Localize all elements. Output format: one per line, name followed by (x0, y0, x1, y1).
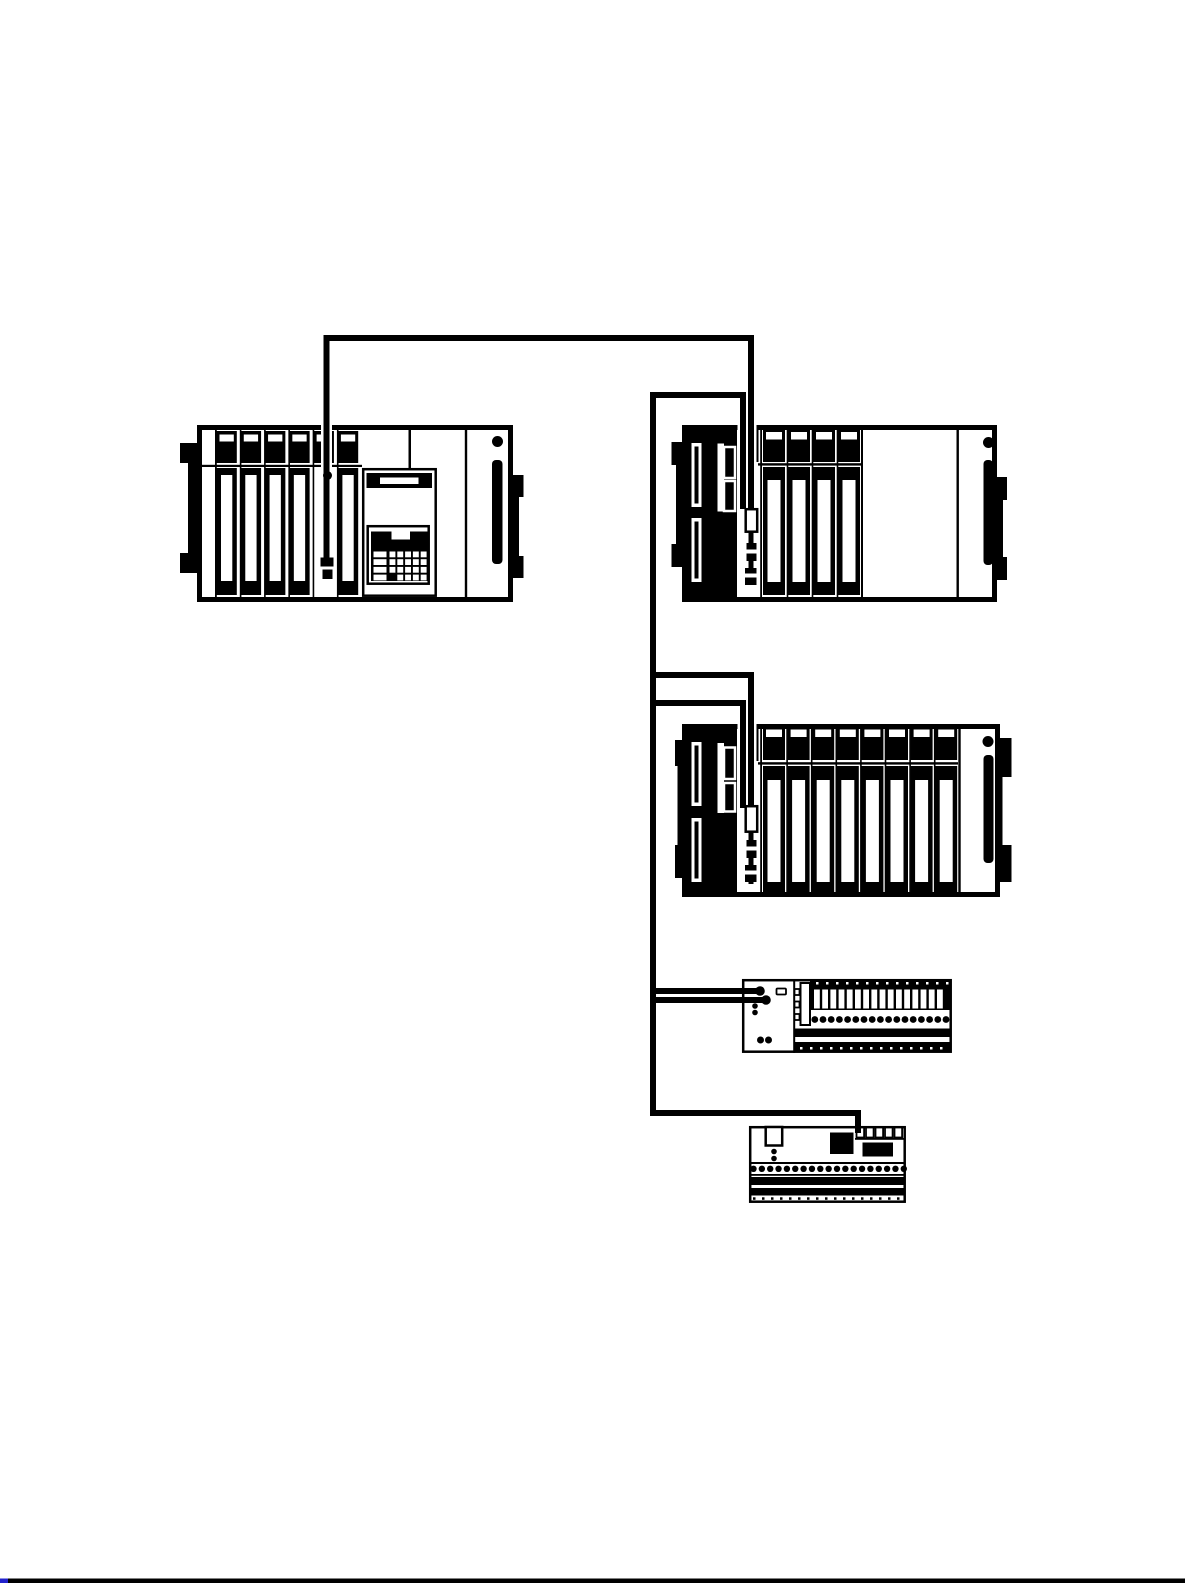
tick-mark (807, 1197, 810, 1200)
io-module-top-label (889, 730, 905, 738)
bus-connector (795, 983, 811, 1025)
connection-terminal-dot (755, 986, 765, 996)
cpu-port (724, 783, 735, 812)
mounting-screw (765, 1037, 772, 1044)
bracket-tab (1000, 738, 1012, 777)
io-module-top-label (341, 435, 355, 442)
cpu-port (724, 481, 735, 511)
tick-mark (856, 982, 859, 985)
io-module-top-label (864, 730, 880, 738)
keypad-notch (392, 532, 411, 540)
connector-notch (745, 871, 757, 875)
divider-line (751, 1162, 905, 1164)
mounting-screw (757, 1037, 764, 1044)
tick-mark (834, 1197, 837, 1200)
tick-mark (860, 1047, 863, 1050)
keypad-key (421, 575, 427, 581)
power-slot (984, 755, 994, 863)
terminal-screw (918, 1016, 925, 1023)
terminal-screw (828, 1016, 835, 1023)
tick-mark (753, 1197, 756, 1200)
tick-mark (798, 1197, 801, 1200)
terminal-screw (885, 1016, 892, 1023)
io-module-card-stripe (221, 475, 232, 581)
tick-mark (826, 982, 829, 985)
footer-rule (8, 1579, 1185, 1584)
tick-mark (780, 1197, 783, 1200)
section-divider (957, 430, 959, 597)
terminal-screw (792, 1166, 798, 1172)
connector-notch (747, 847, 757, 851)
terminal-screw (767, 1166, 773, 1172)
terminal-screw (800, 1166, 806, 1172)
power-led-icon (983, 437, 994, 448)
indicator-slit (695, 746, 699, 803)
rack3-cable-connector (745, 806, 757, 884)
keypad-key-wide (374, 559, 387, 565)
keypad-key (421, 559, 427, 565)
io-module-card-stripe (294, 475, 305, 581)
tick-mark (771, 1197, 774, 1200)
tick-mark (906, 982, 909, 985)
io-module-card-stripe (841, 780, 854, 882)
terminal-box (866, 1128, 874, 1138)
terminal-screw (901, 1166, 907, 1172)
terminal-screw (775, 1166, 781, 1172)
keypad-key (397, 552, 403, 558)
terminal-screw (877, 1016, 884, 1023)
tick-mark (897, 1197, 900, 1200)
terminal-screw (809, 1166, 815, 1172)
tick-mark (850, 1047, 853, 1050)
power-slot (984, 460, 994, 565)
rail-band (795, 1029, 952, 1038)
terminal-slot (847, 990, 853, 1009)
tick-mark (816, 1197, 819, 1200)
tick-mark (940, 1047, 943, 1050)
status-indicator (777, 989, 787, 995)
tick-mark (888, 1197, 891, 1200)
io-module-card-stripe (843, 480, 856, 582)
terminal-slot (896, 990, 902, 1009)
tick-mark (836, 982, 839, 985)
terminal-screw (811, 1016, 818, 1023)
plc-rack-expansion-a (672, 425, 1008, 602)
bracket-tab (675, 845, 682, 878)
tick-mark (870, 1197, 873, 1200)
terminal-screw (842, 1166, 848, 1172)
tick-mark (816, 982, 819, 985)
mounting-bracket-left (672, 442, 683, 567)
terminal-screw (836, 1016, 843, 1023)
tick-mark (866, 982, 869, 985)
io-module-top-label (816, 432, 832, 440)
connector-block (323, 570, 333, 580)
keypad-key (405, 559, 411, 565)
section-divider (465, 430, 467, 597)
io-module-card-stripe (768, 780, 781, 882)
connector-body (801, 983, 811, 1025)
keypad-key (397, 567, 403, 573)
io-module-top-label (815, 730, 831, 738)
terminal-screw (852, 1016, 859, 1023)
io-module-card-stripe (866, 780, 879, 882)
connection-terminal-dot (323, 471, 332, 480)
power-slot (492, 460, 503, 564)
terminal-screw (851, 1166, 857, 1172)
terminal-screw (861, 1016, 868, 1023)
io-module-card-stripe (818, 480, 831, 582)
tick-mark (762, 1197, 765, 1200)
connector-pin (795, 1014, 800, 1020)
tick-mark (800, 1047, 803, 1050)
terminal-screw (893, 1016, 900, 1023)
io-module-card-stripe (245, 475, 256, 581)
tick-mark (810, 1047, 813, 1050)
module-shelf-line (758, 463, 862, 465)
terminal-screw (926, 1016, 933, 1023)
terminal-screw (859, 1166, 865, 1172)
tick-mark (936, 982, 939, 985)
terminal-screw (784, 1166, 790, 1172)
io-module-card-stripe (915, 780, 928, 882)
keypad-key (421, 567, 427, 573)
terminal-screw (820, 1016, 827, 1023)
terminal-slot (830, 990, 836, 1009)
bracket-tab (997, 477, 1007, 500)
tick-mark (916, 982, 919, 985)
display-screen (380, 478, 419, 485)
indicator-slit (695, 447, 699, 504)
terminal-box (876, 1128, 884, 1138)
slot-divider (760, 727, 762, 893)
bracket-tab (513, 556, 524, 578)
terminal-screw (867, 1166, 873, 1172)
manual-page (0, 0, 1193, 1585)
programming-console (363, 469, 436, 596)
io-module-top-label (938, 730, 954, 738)
bracket-tab (997, 557, 1007, 580)
mounting-bracket-left (180, 443, 197, 573)
slot-divider (861, 430, 863, 597)
tick-mark (890, 1047, 893, 1050)
terminal-slot (855, 990, 861, 1009)
terminal-box (885, 1128, 893, 1138)
terminal-screw (759, 1166, 765, 1172)
bracket-tab (672, 442, 683, 465)
keypad-key (397, 575, 403, 581)
connector-notch (747, 550, 757, 554)
mounting-bracket-right (513, 475, 524, 578)
mounting-bracket-left (675, 740, 682, 878)
io-module-card-stripe (793, 480, 806, 582)
keypad-key (390, 552, 396, 558)
power-led-icon (492, 436, 503, 447)
connector-pin (795, 1002, 800, 1008)
keypad-key (390, 567, 396, 573)
plc-network-wiring-diagram (0, 0, 1193, 1585)
tick-mark (879, 1197, 882, 1200)
keypad-key (397, 559, 403, 565)
slot-divider (409, 430, 412, 469)
terminal-screw (943, 1016, 950, 1023)
io-module-top-label (766, 730, 782, 738)
tick-mark (870, 1047, 873, 1050)
section-divider (958, 727, 960, 893)
tick-mark (910, 1047, 913, 1050)
terminal-slot (912, 990, 918, 1009)
keypad-key (390, 559, 396, 565)
connector-plug (746, 509, 758, 532)
bracket-tab (180, 443, 197, 463)
tick-mark (830, 1047, 833, 1050)
tick-mark (930, 1047, 933, 1050)
terminal-screw (825, 1166, 831, 1172)
tick-mark (926, 982, 929, 985)
led-dot (771, 1149, 777, 1155)
connector-pin (795, 989, 800, 995)
keypad-key (413, 559, 419, 565)
tick-mark (880, 1047, 883, 1050)
tick-mark (900, 1047, 903, 1050)
tick-mark (843, 1197, 846, 1200)
terminal-slot (871, 990, 877, 1009)
rack3-module-slots (763, 727, 957, 894)
io-module-card-stripe (940, 780, 953, 882)
terminal-screw (884, 1166, 890, 1172)
indicator-slit (695, 822, 699, 879)
plc-rack-main (180, 428, 524, 600)
component-block (863, 1143, 894, 1157)
terminal-screw (892, 1166, 898, 1172)
terminal-slot (863, 990, 869, 1009)
io-module-card-stripe (768, 480, 781, 582)
io-module-top-label (292, 435, 306, 442)
tick-mark (846, 982, 849, 985)
led-dot (752, 1010, 758, 1016)
io-module-top-label (220, 435, 234, 442)
io-module-card-stripe (891, 780, 904, 882)
connector-block (321, 558, 334, 567)
tick-mark (886, 982, 889, 985)
io-module-top-label (791, 730, 807, 738)
keypad-key-wide (374, 575, 387, 581)
rail-band (795, 1042, 952, 1051)
connector-plug (746, 806, 758, 832)
cpu-port (724, 447, 735, 478)
tick-mark (920, 1047, 923, 1050)
led-dot (771, 1156, 777, 1162)
tick-mark (840, 1047, 843, 1050)
bracket-tab (672, 544, 683, 567)
tick-mark (825, 1197, 828, 1200)
terminal-slot (937, 990, 943, 1009)
bracket-tab (513, 475, 524, 497)
footer-rule-blue-tip (0, 1579, 8, 1584)
plc-rack-expansion-b (675, 724, 1012, 897)
remote-io-terminal-block (743, 979, 951, 1053)
bracket-tab (1000, 845, 1012, 882)
keypad-key (413, 552, 419, 558)
power-led-icon (983, 736, 994, 747)
io-module-card-stripe (342, 475, 353, 581)
terminal-screw (817, 1166, 823, 1172)
terminal-slot (929, 990, 935, 1009)
io-module-top-label (841, 432, 857, 440)
tick-mark (876, 982, 879, 985)
rack2-cable-connector (745, 509, 757, 585)
tick-mark (789, 1197, 792, 1200)
tick-mark (852, 1197, 855, 1200)
terminal-slot (839, 990, 845, 1009)
terminal-screw (844, 1016, 851, 1023)
rail-band (751, 1188, 905, 1196)
mounting-bracket-right (1000, 738, 1012, 882)
terminal-slot (888, 990, 894, 1009)
keypad-key (413, 567, 419, 573)
terminal-slot (904, 990, 910, 1009)
tick-mark (861, 1197, 864, 1200)
keypad-key (405, 567, 411, 573)
io-module-top-label (766, 432, 782, 440)
tick-mark (896, 982, 899, 985)
tick-mark (820, 1047, 823, 1050)
keypad-key (421, 552, 427, 558)
connection-terminal-dot (761, 995, 771, 1005)
tick-mark (946, 982, 949, 985)
terminal-slot (921, 990, 927, 1009)
page-footer-rule (0, 1579, 1185, 1584)
io-module-top-label (791, 432, 807, 440)
terminal-slot (822, 990, 828, 1009)
io-module-card-stripe (792, 780, 805, 882)
indicator-slit (695, 522, 699, 579)
terminal-screw (869, 1016, 876, 1023)
io-module-card-stripe (817, 780, 830, 882)
terminal-box (895, 1128, 903, 1138)
rail-band (751, 1177, 905, 1185)
terminal-screw (834, 1166, 840, 1172)
bracket-tab (675, 740, 682, 766)
module-shelf-line (758, 762, 958, 764)
keypad-key (405, 552, 411, 558)
terminal-screw (934, 1016, 941, 1023)
remote-io-relay-board (750, 1127, 907, 1202)
terminal-slot (814, 990, 820, 1009)
io-module-top-label (244, 435, 258, 442)
relay-chip (830, 1133, 854, 1155)
terminal-screw (910, 1016, 917, 1023)
keypad-key (405, 575, 411, 581)
bracket-tab (180, 553, 197, 573)
cpu-port (724, 748, 735, 780)
socket-outline (766, 1127, 783, 1146)
io-module-top-label (840, 730, 856, 738)
keypad-key-wide (374, 552, 387, 558)
keypad-key-wide (374, 567, 387, 573)
slot-divider (760, 430, 762, 597)
keypad-key (413, 575, 419, 581)
connector-notch (745, 574, 757, 578)
io-module-card-stripe (270, 475, 281, 581)
io-module-top-label (914, 730, 930, 738)
terminal-screw (876, 1166, 882, 1172)
led-dot (752, 1003, 758, 1009)
mounting-bracket-right (997, 477, 1007, 580)
divider-line (751, 1174, 905, 1176)
io-module-top-label (268, 435, 282, 442)
terminal-screw (902, 1016, 909, 1023)
terminal-slot (880, 990, 886, 1009)
terminal-screw (750, 1166, 756, 1172)
